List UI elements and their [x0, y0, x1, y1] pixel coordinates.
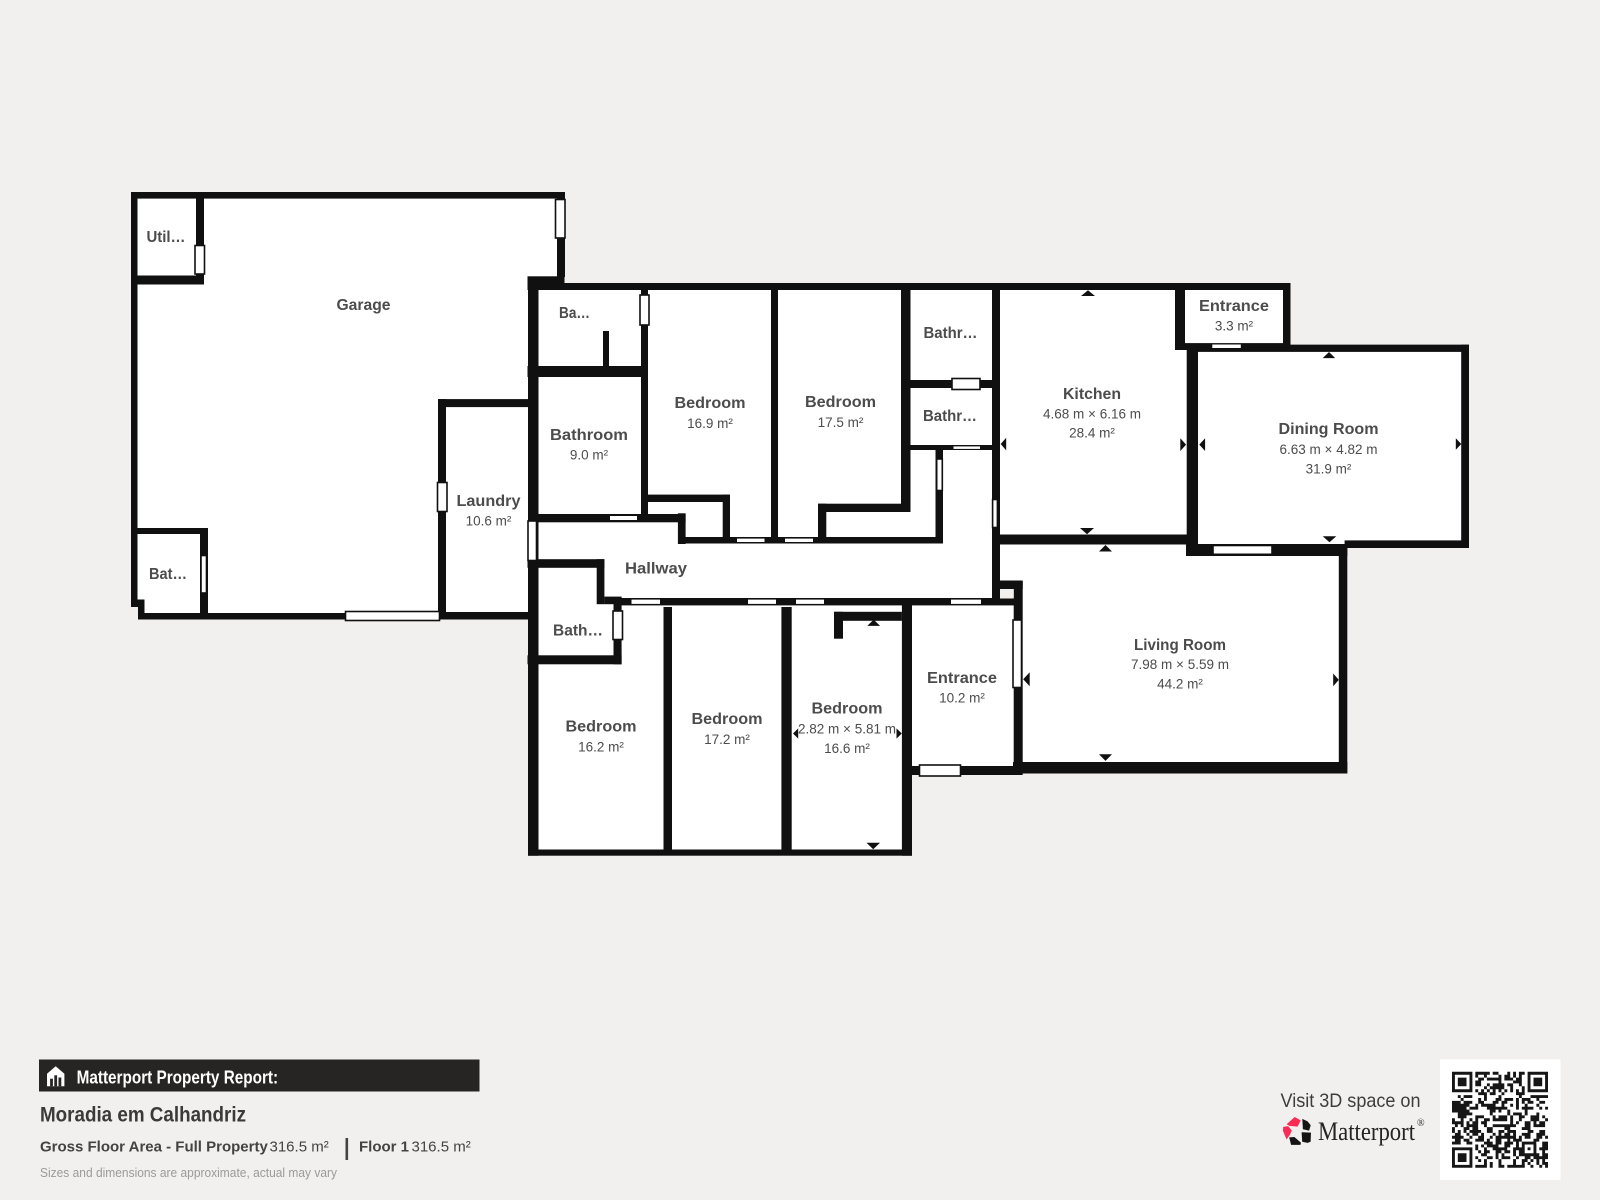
svg-text:316.5 m²: 316.5 m² — [412, 1139, 471, 1156]
svg-text:Entrance: Entrance — [1199, 298, 1269, 315]
svg-text:Bathr…: Bathr… — [924, 325, 978, 342]
svg-text:7.98 m × 5.59 m: 7.98 m × 5.59 m — [1131, 657, 1229, 672]
svg-text:Ba…: Ba… — [559, 305, 590, 322]
svg-text:316.5 m²: 316.5 m² — [270, 1139, 329, 1156]
svg-text:Dining Room: Dining Room — [1279, 421, 1379, 438]
svg-text:Entrance: Entrance — [927, 670, 997, 687]
svg-text:Bedroom: Bedroom — [812, 701, 883, 718]
svg-text:Visit 3D space on: Visit 3D space on — [1281, 1090, 1421, 1112]
svg-text:28.4 m²: 28.4 m² — [1069, 426, 1115, 441]
svg-text:3.3 m²: 3.3 m² — [1215, 319, 1254, 334]
svg-text:Moradia em Calhandriz: Moradia em Calhandriz — [40, 1103, 246, 1127]
svg-text:Bedroom: Bedroom — [675, 395, 746, 412]
svg-text:Bath…: Bath… — [553, 623, 603, 640]
svg-text:Living Room: Living Room — [1134, 637, 1226, 654]
svg-text:Bedroom: Bedroom — [805, 394, 876, 411]
svg-text:Matterport: Matterport — [1318, 1117, 1416, 1146]
svg-text:Sizes and dimensions are appro: Sizes and dimensions are approximate, ac… — [40, 1165, 337, 1180]
svg-text:Bedroom: Bedroom — [692, 711, 763, 728]
svg-text:Bat…: Bat… — [149, 566, 187, 583]
svg-text:Laundry: Laundry — [457, 493, 521, 510]
svg-text:Util…: Util… — [147, 229, 186, 246]
svg-text:16.9 m²: 16.9 m² — [687, 416, 733, 431]
svg-text:Bathroom: Bathroom — [550, 427, 628, 444]
svg-text:17.2 m²: 17.2 m² — [704, 732, 750, 747]
svg-text:Hallway: Hallway — [625, 561, 687, 578]
svg-text:16.2 m²: 16.2 m² — [578, 740, 624, 755]
svg-text:Kitchen: Kitchen — [1063, 386, 1121, 403]
svg-text:4.68 m × 6.16 m: 4.68 m × 6.16 m — [1043, 407, 1141, 422]
svg-text:6.63 m × 4.82 m: 6.63 m × 4.82 m — [1280, 442, 1378, 457]
svg-text:16.6 m²: 16.6 m² — [824, 741, 870, 756]
svg-text:17.5 m²: 17.5 m² — [818, 415, 864, 430]
svg-text:Floor 1: Floor 1 — [359, 1139, 409, 1156]
svg-text:Bedroom: Bedroom — [566, 719, 637, 736]
svg-text:Garage: Garage — [337, 297, 391, 314]
svg-text:10.6 m²: 10.6 m² — [466, 514, 512, 529]
svg-text:Gross Floor Area - Full Proper: Gross Floor Area - Full Property — [40, 1139, 268, 1156]
svg-text:31.9 m²: 31.9 m² — [1306, 462, 1352, 477]
svg-text:10.2 m²: 10.2 m² — [939, 691, 985, 706]
svg-text:44.2 m²: 44.2 m² — [1157, 677, 1203, 692]
svg-text:Matterport Property Report:: Matterport Property Report: — [77, 1068, 279, 1088]
svg-text:®: ® — [1417, 1118, 1425, 1129]
svg-text:2.82 m × 5.81 m: 2.82 m × 5.81 m — [798, 722, 896, 737]
svg-text:9.0 m²: 9.0 m² — [570, 448, 609, 463]
svg-text:Bathr…: Bathr… — [923, 408, 977, 425]
